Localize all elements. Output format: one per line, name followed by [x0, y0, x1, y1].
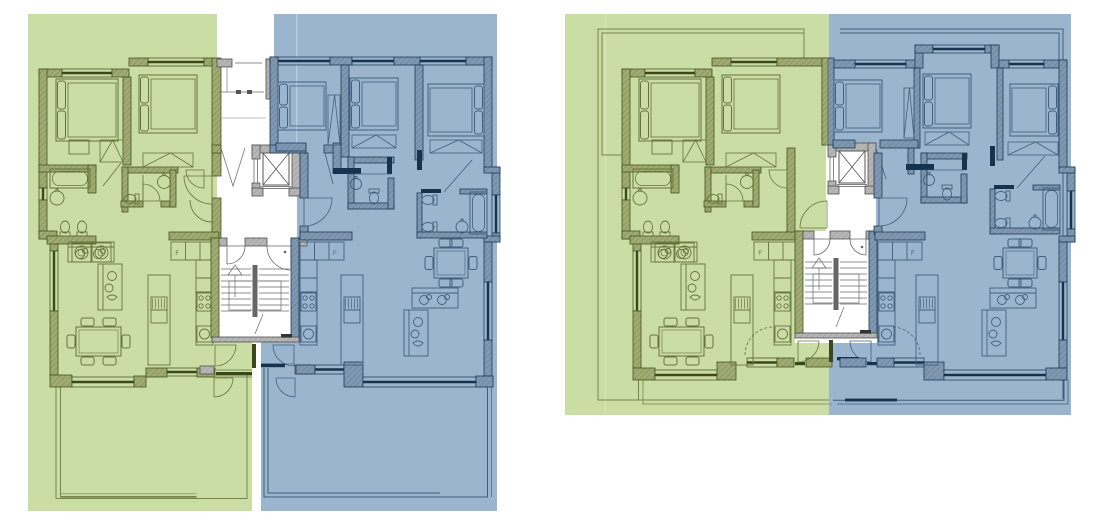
svg-text:F: F	[758, 251, 762, 257]
svg-text:F: F	[911, 251, 915, 257]
svg-text:F: F	[333, 251, 337, 257]
svg-text:F: F	[175, 251, 179, 257]
